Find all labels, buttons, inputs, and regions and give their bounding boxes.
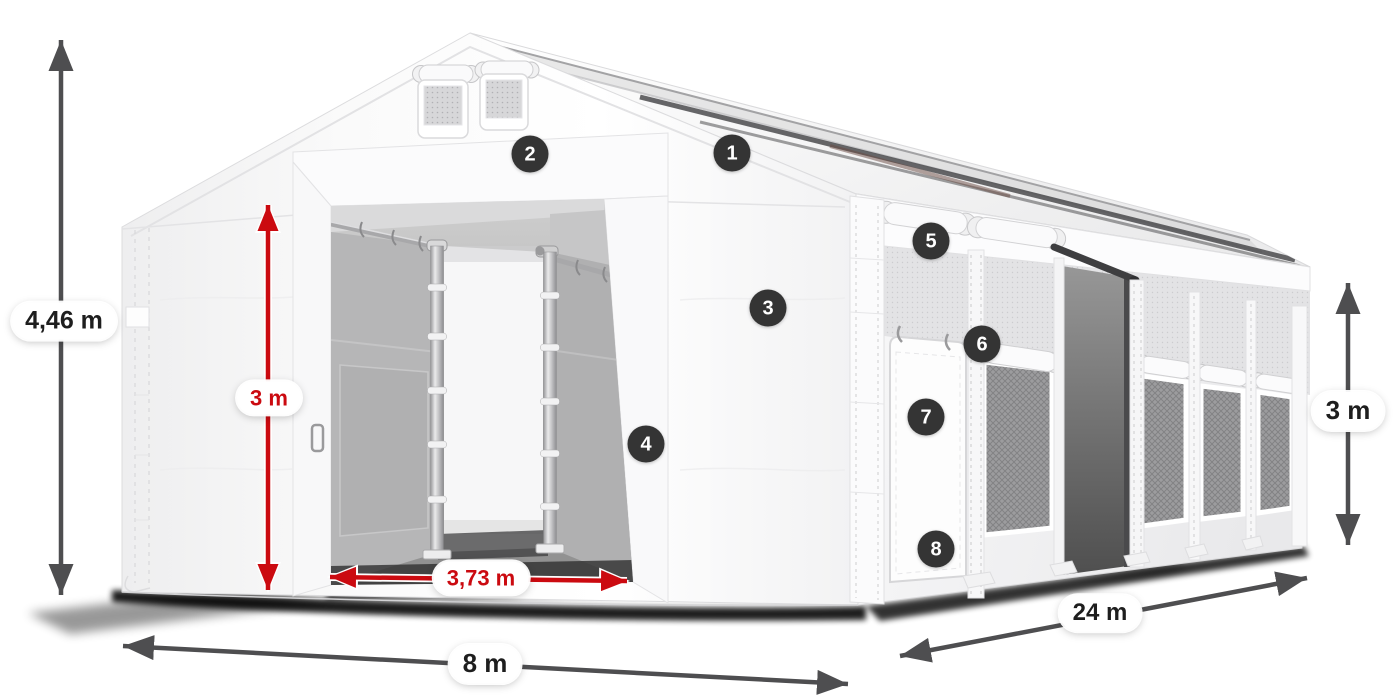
callout-badge-2: 2 <box>512 136 549 173</box>
corner-post <box>850 196 884 604</box>
side-window-3 <box>1192 363 1255 519</box>
callout-badge-5: 5 <box>913 223 950 260</box>
tent-illustration <box>0 0 1400 700</box>
callout-badge-8: 8 <box>918 531 955 568</box>
dimension-label-total-height: 4,46 m <box>12 303 116 340</box>
callout-badge-3: 3 <box>750 290 787 327</box>
tent-product-diagram: 1 2 3 4 5 6 7 8 4,46 m 3 m 3,73 m 8 m 24… <box>0 0 1400 700</box>
dimension-label-door-width: 3,73 m <box>434 561 529 594</box>
side-window-1 <box>975 341 1067 535</box>
callout-badge-6: 6 <box>964 326 1001 363</box>
dimension-label-front-width: 8 m <box>450 645 521 683</box>
dimension-label-door-height: 3 m <box>237 381 301 414</box>
dimension-label-side-height: 3 m <box>1313 392 1384 430</box>
callout-badge-1: 1 <box>714 135 751 172</box>
front-door-left-jamb <box>293 162 331 596</box>
front-door-opening-interior <box>325 195 640 590</box>
callout-badge-4: 4 <box>628 426 665 463</box>
side-doorway-opening <box>1054 247 1139 575</box>
dimension-label-side-length: 24 m <box>1060 595 1141 631</box>
callout-badge-7: 7 <box>908 399 945 436</box>
